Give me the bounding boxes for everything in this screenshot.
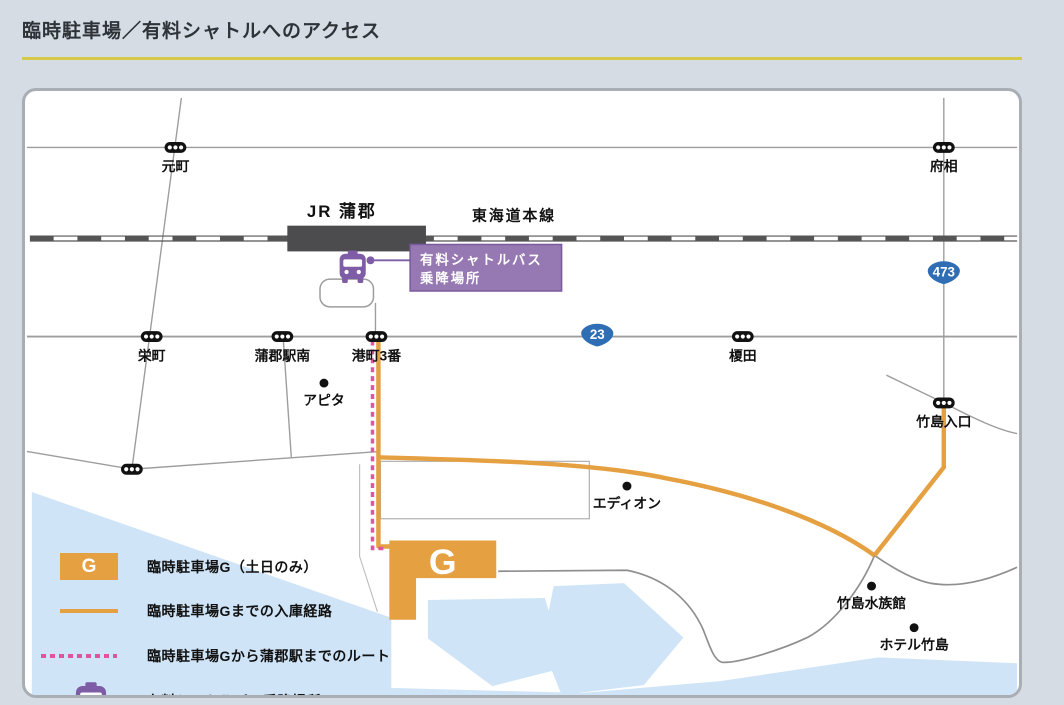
signal-enokida: 榎田	[729, 331, 757, 363]
legend-label: 臨時駐車場Gまでの入庫経路	[147, 601, 332, 621]
landmark-hotel-takeshima: ホテル竹島	[879, 623, 948, 652]
legend-label: 臨時駐車場G（土日のみ）	[147, 557, 318, 577]
signal-label: 竹島入口	[915, 414, 971, 430]
landmark-label: アピタ	[303, 392, 345, 408]
signal-sakaemachi: 栄町	[137, 331, 166, 363]
shuttle-stop-label-line2: 乗降場所	[419, 270, 481, 286]
legend-label: 臨時駐車場Gから蒲郡駅までのルート	[147, 646, 390, 666]
signal-label: 港町3番	[352, 347, 401, 363]
station-name: JR 蒲郡	[307, 202, 377, 221]
route-number: 23	[590, 327, 605, 342]
legend-pink-dashed-swatch	[41, 654, 117, 658]
signal-label: 榎田	[729, 347, 757, 363]
railway-tokaido-line	[30, 236, 1017, 241]
landmark-label: 竹島水族館	[836, 595, 906, 611]
signal-label: 栄町	[137, 347, 166, 363]
landmark-label: ホテル竹島	[879, 636, 948, 652]
title-underline	[22, 57, 1022, 60]
legend-item-shuttle-stop: 有料シャトルバス乗降場所	[39, 682, 479, 698]
city-block-outline	[380, 461, 589, 518]
landmark-edion: エディオン	[593, 482, 661, 511]
legend-label: 有料シャトルバス乗降場所	[147, 691, 321, 698]
shuttle-stop-label-line1: 有料シャトルバス	[420, 251, 543, 267]
legend-item-parking-g: G 臨時駐車場G（土日のみ）	[39, 553, 479, 580]
route-number: 473	[933, 265, 955, 280]
road-harbor-west	[27, 451, 380, 469]
railway-line-name: 東海道本線	[472, 207, 556, 225]
legend-bus-icon	[75, 682, 107, 698]
legend-parking-box-swatch: G	[60, 553, 118, 580]
signal-unnamed	[121, 464, 143, 475]
signal-fuso: 府相	[930, 142, 958, 174]
landmark-label: エディオン	[593, 495, 661, 511]
page-title: 臨時駐車場／有料シャトルへのアクセス	[22, 16, 381, 43]
landmark-takeshima-aquarium: 竹島水族館	[836, 582, 906, 611]
parking-entry-route	[378, 341, 943, 556]
signal-label: 府相	[930, 158, 958, 174]
landmark-apita: アピタ	[303, 379, 345, 408]
legend-orange-line-swatch	[60, 609, 118, 613]
station-building	[287, 226, 426, 252]
signal-label: 元町	[162, 158, 190, 174]
signal-motomachi: 元町	[162, 142, 190, 174]
map-legend: G 臨時駐車場G（土日のみ） 臨時駐車場Gまでの入庫経路 臨時駐車場Gから蒲郡駅…	[39, 553, 479, 698]
signal-takeshima-iriguchi: 竹島入口	[915, 397, 971, 429]
road-diagonal-west	[132, 98, 182, 469]
route-badge-23: 23	[581, 324, 613, 347]
access-map: JR 蒲郡 東海道本線 G 元町 府相 栄町 蒲郡駅南 港町3番	[22, 88, 1022, 698]
legend-item-return-route: 臨時駐車場Gから蒲郡駅までのルート	[39, 646, 479, 666]
route-badge-473: 473	[928, 261, 960, 284]
road-coast-right	[874, 555, 1017, 584]
station-rotary	[320, 279, 373, 307]
signal-label: 蒲郡駅南	[255, 347, 311, 363]
legend-item-entry-route: 臨時駐車場Gまでの入庫経路	[39, 601, 479, 621]
callout-dot	[367, 256, 375, 264]
